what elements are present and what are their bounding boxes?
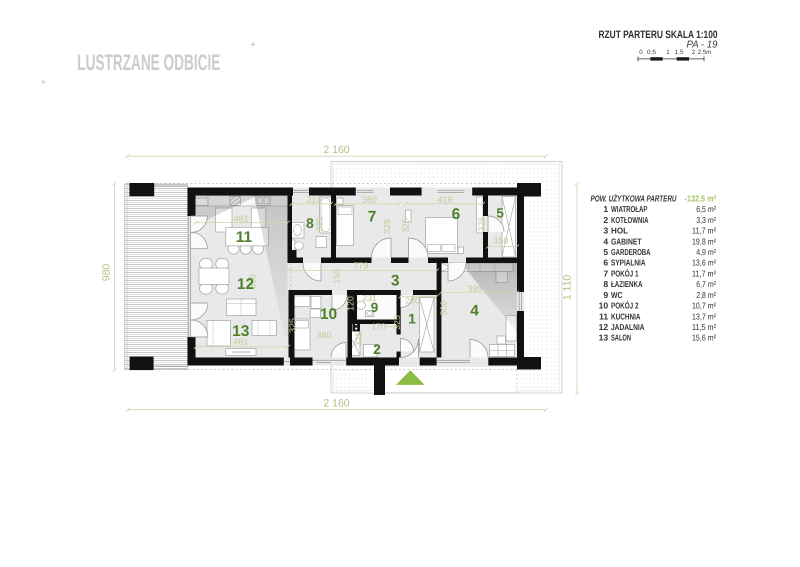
svg-text:11,7 m²: 11,7 m² (692, 268, 716, 278)
svg-text:1: 1 (666, 49, 670, 56)
svg-text:POKÓJ 2: POKÓJ 2 (611, 301, 639, 311)
svg-text:-132,5 m²: -132,5 m² (685, 193, 717, 203)
svg-text:10: 10 (599, 301, 609, 311)
svg-text:6: 6 (603, 258, 608, 268)
svg-text:10: 10 (320, 306, 337, 323)
svg-text:9: 9 (371, 300, 379, 315)
svg-text:980: 980 (101, 264, 113, 282)
svg-text:0.5: 0.5 (647, 49, 657, 56)
svg-text:POKÓJ 1: POKÓJ 1 (611, 268, 639, 278)
svg-text:1: 1 (603, 204, 608, 214)
svg-text:19,8 m²: 19,8 m² (692, 236, 716, 246)
svg-text:2: 2 (603, 215, 608, 225)
svg-text:8: 8 (603, 279, 608, 289)
svg-text:500: 500 (439, 301, 449, 316)
svg-text:SYPIALNIA: SYPIALNIA (611, 258, 646, 268)
svg-text:3: 3 (603, 226, 608, 236)
svg-text:1 110: 1 110 (562, 275, 574, 301)
svg-text:13: 13 (232, 323, 250, 340)
svg-text:3: 3 (391, 273, 400, 290)
svg-text:4: 4 (470, 303, 479, 320)
svg-text:325: 325 (392, 315, 402, 330)
svg-text:325: 325 (288, 318, 298, 333)
svg-text:5: 5 (603, 247, 608, 257)
svg-text:0: 0 (639, 49, 643, 56)
svg-text:200: 200 (405, 295, 420, 305)
svg-text:HOL: HOL (611, 226, 628, 236)
svg-text:325: 325 (401, 218, 411, 233)
svg-text:6: 6 (452, 206, 461, 223)
svg-text:LUSTRZANE ODBICIE: LUSTRZANE ODBICIE (77, 50, 220, 75)
svg-text:15,6 m²: 15,6 m² (692, 333, 716, 343)
svg-text:WIATROŁAP: WIATROŁAP (611, 204, 648, 214)
svg-text:JADALNIA: JADALNIA (611, 322, 645, 332)
svg-text:11,7 m²: 11,7 m² (692, 226, 716, 236)
svg-text:9: 9 (603, 290, 608, 300)
svg-text:7: 7 (603, 268, 608, 278)
svg-text:4,9 m²: 4,9 m² (696, 247, 716, 257)
svg-text:GARDEROBA: GARDEROBA (611, 247, 651, 257)
svg-text:150: 150 (332, 269, 342, 284)
svg-text:POW. UŻYTKOWA PARTERU: POW. UŻYTKOWA PARTERU (591, 193, 677, 203)
svg-text:13: 13 (599, 333, 609, 343)
svg-text:150: 150 (494, 236, 509, 246)
svg-text:170: 170 (371, 321, 386, 331)
svg-text:210: 210 (307, 194, 322, 204)
svg-text:6,7 m²: 6,7 m² (696, 279, 716, 289)
svg-text:2.5m: 2.5m (698, 49, 712, 56)
svg-text:325: 325 (477, 217, 487, 232)
svg-text:12: 12 (237, 276, 254, 293)
svg-text:325: 325 (382, 219, 392, 234)
svg-text:WC: WC (611, 290, 623, 300)
svg-text:8: 8 (306, 215, 314, 231)
svg-text:6,5 m²: 6,5 m² (696, 204, 716, 214)
svg-text:13,6 m²: 13,6 m² (692, 258, 716, 268)
svg-text:KOTŁOWNIA: KOTŁOWNIA (611, 215, 649, 225)
svg-text:GABINET: GABINET (611, 236, 642, 246)
svg-text:1: 1 (408, 310, 416, 326)
svg-text:1.5: 1.5 (675, 49, 685, 56)
svg-text:2 160: 2 160 (323, 144, 349, 156)
svg-text:KUCHNIA: KUCHNIA (611, 311, 641, 321)
svg-text:11,5 m²: 11,5 m² (692, 322, 716, 332)
svg-text:11: 11 (599, 311, 608, 321)
svg-text:418: 418 (438, 195, 453, 205)
svg-text:7: 7 (368, 209, 377, 226)
svg-text:779: 779 (354, 261, 369, 271)
svg-text:2: 2 (373, 341, 381, 357)
svg-text:360: 360 (317, 330, 332, 340)
svg-text:4: 4 (603, 236, 608, 246)
svg-text:5: 5 (496, 206, 504, 221)
svg-text:325: 325 (354, 332, 364, 347)
svg-text:10,7 m²: 10,7 m² (692, 301, 716, 311)
svg-text:2,8 m²: 2,8 m² (696, 290, 716, 300)
svg-text:360: 360 (362, 194, 377, 204)
svg-text:395: 395 (468, 283, 483, 293)
svg-text:325: 325 (315, 217, 325, 232)
svg-text:ŁAZIENKA: ŁAZIENKA (611, 279, 643, 289)
svg-text:2 160: 2 160 (323, 398, 349, 410)
svg-text:13,7 m²: 13,7 m² (692, 311, 716, 321)
svg-text:481: 481 (234, 214, 249, 224)
svg-text:120: 120 (346, 296, 356, 311)
svg-text:11: 11 (236, 229, 253, 246)
svg-text:2: 2 (692, 49, 696, 56)
svg-text:SALON: SALON (611, 333, 631, 343)
svg-text:12: 12 (599, 322, 609, 332)
svg-text:3,3 m²: 3,3 m² (696, 215, 716, 225)
